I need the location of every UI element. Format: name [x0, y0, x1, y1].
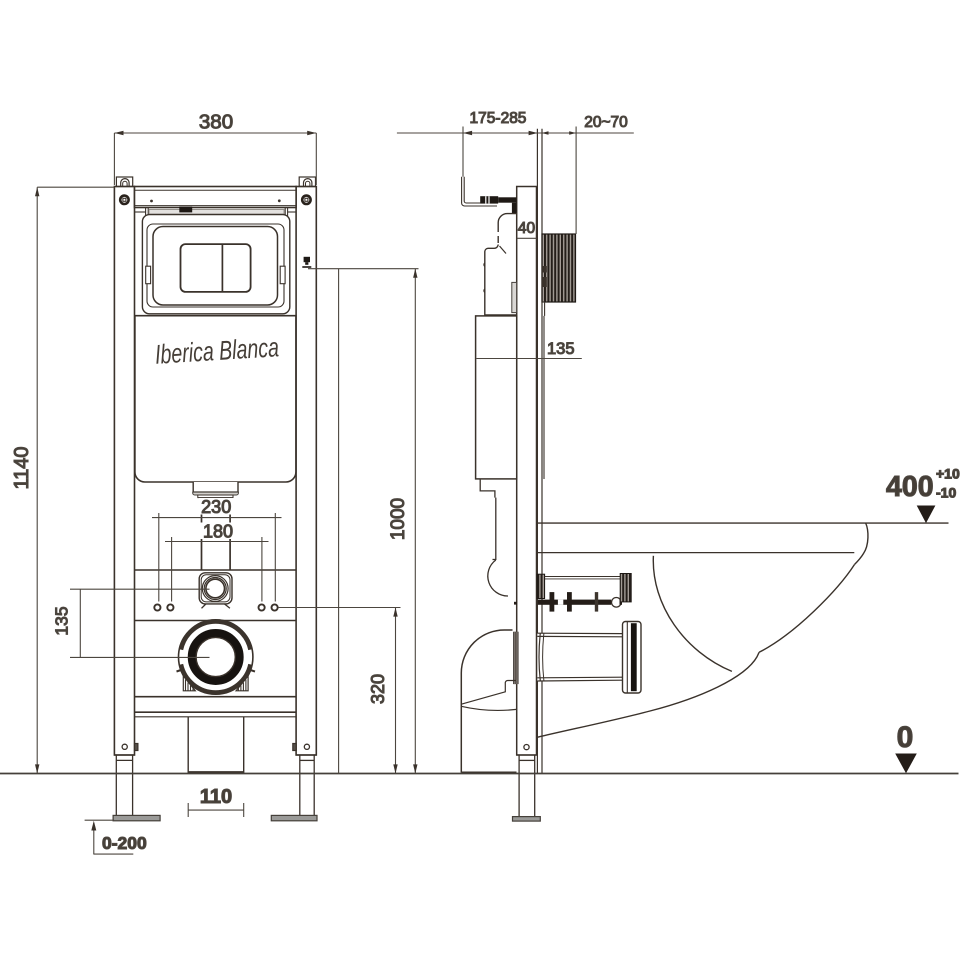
svg-text:320: 320	[368, 674, 388, 704]
svg-text:20~70: 20~70	[584, 114, 628, 131]
svg-text:40: 40	[518, 220, 536, 237]
svg-text:135: 135	[52, 606, 72, 635]
svg-text:+10: +10	[936, 466, 960, 482]
svg-text:110: 110	[200, 786, 232, 808]
svg-text:400: 400	[886, 471, 934, 503]
svg-text:180: 180	[203, 522, 233, 542]
svg-text:135: 135	[547, 340, 575, 358]
svg-text:0: 0	[897, 721, 914, 754]
svg-text:380: 380	[199, 111, 233, 134]
svg-text:175-285: 175-285	[470, 110, 527, 127]
svg-text:230: 230	[201, 497, 231, 517]
svg-text:-10: -10	[936, 485, 956, 501]
svg-text:1000: 1000	[388, 498, 409, 540]
svg-text:0-200: 0-200	[102, 833, 147, 853]
svg-text:1140: 1140	[11, 446, 33, 489]
